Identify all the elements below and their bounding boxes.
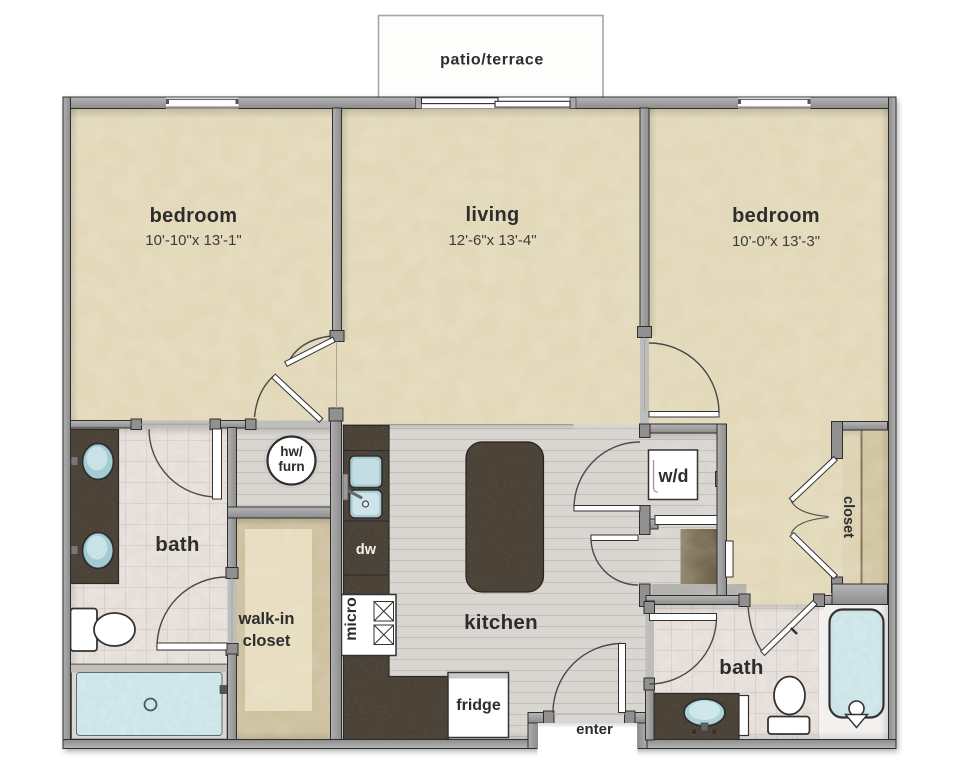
svg-text:x: x <box>712 727 717 736</box>
svg-text:10'-10"x 13'-1": 10'-10"x 13'-1" <box>145 232 241 249</box>
svg-text:fridge: fridge <box>456 697 501 714</box>
svg-text:walk-in: walk-in <box>238 610 295 628</box>
svg-text:kitchen: kitchen <box>464 611 538 634</box>
svg-text:living: living <box>465 204 519 226</box>
svg-text:bath: bath <box>155 533 199 556</box>
svg-text:micro: micro <box>343 597 360 641</box>
svg-text:x: x <box>692 727 697 736</box>
svg-text:enter: enter <box>576 721 613 738</box>
svg-text:closet: closet <box>840 496 856 538</box>
svg-text:bath: bath <box>719 656 763 679</box>
svg-text:furn: furn <box>278 459 304 474</box>
svg-text:dw: dw <box>356 542 377 558</box>
svg-text:patio/terrace: patio/terrace <box>440 52 544 69</box>
svg-text:12'-6"x 13'-4": 12'-6"x 13'-4" <box>448 232 536 249</box>
svg-text:bedroom: bedroom <box>732 205 820 227</box>
svg-text:w/d: w/d <box>658 466 689 486</box>
svg-text:hw/: hw/ <box>280 444 303 459</box>
svg-text:closet: closet <box>243 632 291 650</box>
svg-text:10'-0"x 13'-3": 10'-0"x 13'-3" <box>732 233 820 250</box>
svg-text:bedroom: bedroom <box>150 205 238 227</box>
